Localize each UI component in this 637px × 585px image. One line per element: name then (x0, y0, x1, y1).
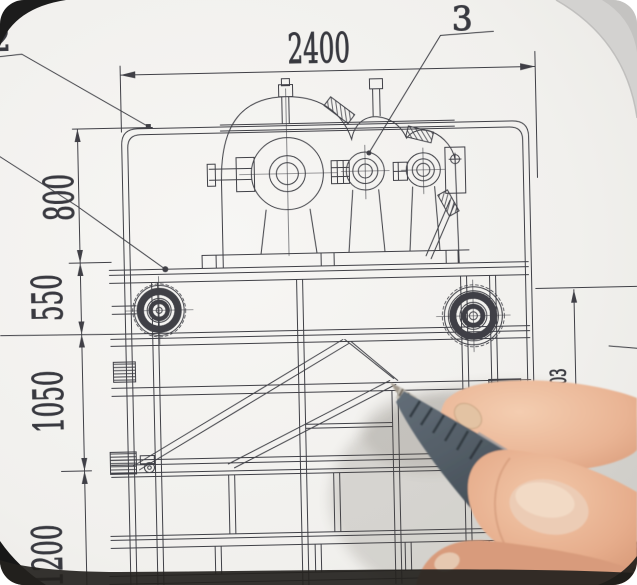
dim-550-label: 550 (24, 274, 72, 322)
photo-of-engineering-drawing: 2400 800 550 1050 1200 1403 2 (0, 0, 637, 585)
callout-3-label: 3 (451, 0, 473, 38)
dim-800-label: 800 (36, 173, 84, 221)
photo-canvas: 2400 800 550 1050 1200 1403 2 (0, 0, 637, 585)
dim-2400-label: 2400 (287, 25, 351, 74)
dim-1050-label: 1050 (25, 370, 74, 434)
